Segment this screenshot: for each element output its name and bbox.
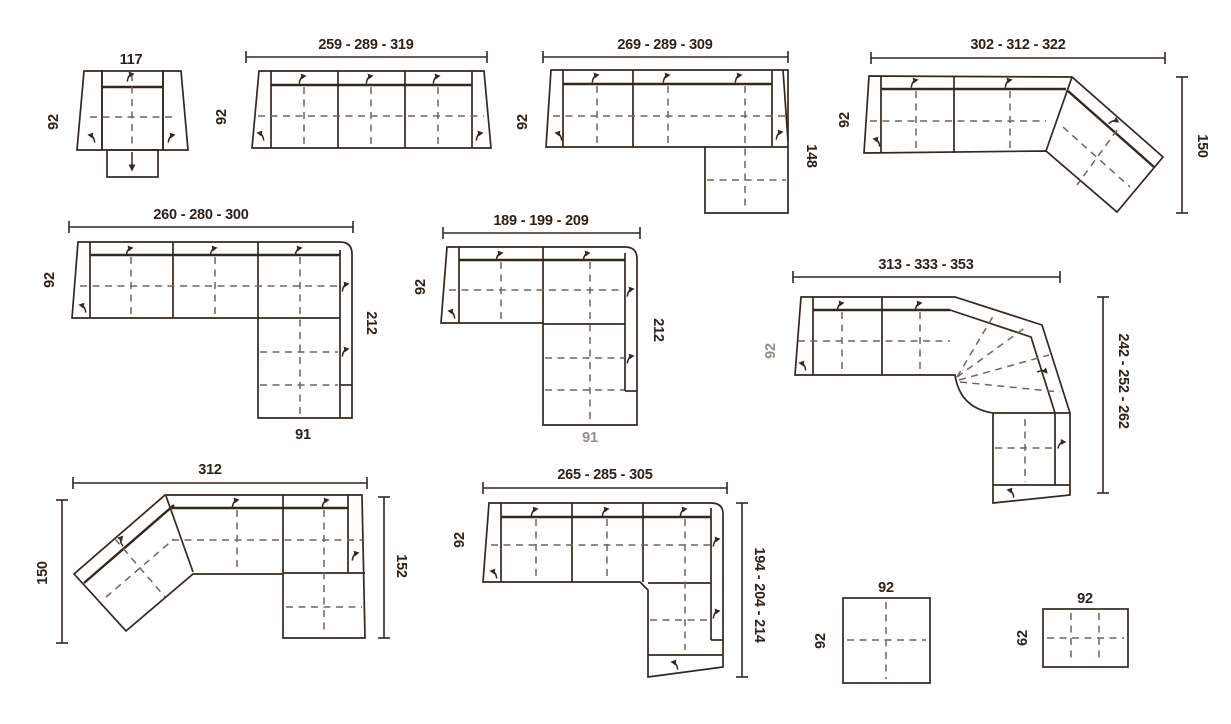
armchair-diagram: 117 92 <box>46 52 188 177</box>
sofa-guides <box>553 86 786 210</box>
pouf-depth-label: 62 <box>1015 630 1031 646</box>
width-dimension-line <box>483 482 727 494</box>
recline-arrow-icon <box>342 347 349 357</box>
sofa-depth-label: 92 <box>214 109 230 125</box>
angled-end-sofa-diagram: 302 - 312 - 322 92 150 <box>837 37 1210 213</box>
pouf-depth-label: 92 <box>813 633 829 649</box>
recline-arrow-icon <box>735 73 742 83</box>
sofa-guides <box>491 519 710 650</box>
recline-arrow-icon <box>433 74 440 84</box>
recline-arrow-icon <box>447 309 454 319</box>
recline-arrow-icon <box>232 498 239 508</box>
recline-arrow-icon <box>299 74 306 84</box>
left-depth-dimension-line <box>56 500 68 643</box>
sofa-width-label: 313 - 333 - 353 <box>878 257 973 273</box>
sofa-outline <box>441 247 637 425</box>
recline-arrow-icon <box>127 72 134 82</box>
sofa-guides <box>870 91 1130 187</box>
low-pouf-diagram: 92 62 <box>1015 591 1128 667</box>
armchair-width-label: 117 <box>120 52 143 68</box>
sofa-width-label: 312 <box>198 462 222 478</box>
left-depth-label: 150 <box>35 561 51 585</box>
recline-arrow-icon <box>592 73 599 83</box>
curved-corner-sofa-diagram: 313 - 333 - 353 92 242 - 252 - 262 <box>763 257 1131 503</box>
sofa-guides <box>798 312 1060 482</box>
sofa-depth-label: 92 <box>452 532 468 548</box>
recline-arrow-icon <box>531 507 538 517</box>
sofa-width-label: 269 - 289 - 309 <box>617 37 712 53</box>
recline-arrow-icon <box>713 609 720 619</box>
recline-arrow-icon <box>366 74 373 84</box>
chaise-sofa-diagram: 269 - 289 - 309 92 148 <box>515 37 819 213</box>
width-dimension-line <box>871 52 1165 64</box>
sofa-width-label: 259 - 289 - 319 <box>318 37 413 53</box>
sofa-width-label: 265 - 285 - 305 <box>557 467 652 483</box>
end-width-label: 91 <box>295 427 311 443</box>
recline-arrow-icon <box>872 137 879 147</box>
pouf-guides <box>1047 613 1124 663</box>
recline-arrow-icon <box>342 282 349 292</box>
corner-chaise-sofa-diagram: 265 - 285 - 305 92 194 - 204 - 214 <box>452 467 767 677</box>
side-depth-label: 242 - 252 - 262 <box>1115 333 1131 428</box>
recline-arrow-icon <box>256 131 263 141</box>
sofa-guides <box>449 262 624 421</box>
armchair-depth-label: 92 <box>46 114 62 130</box>
sofa-depth-label: 92 <box>413 279 429 295</box>
depth-dimension-line <box>736 503 748 677</box>
sofa-width-label: 302 - 312 - 322 <box>970 37 1065 53</box>
sofa-depth-label: 92 <box>837 112 853 128</box>
sofa-guides <box>80 257 338 414</box>
footrest-arrow-icon <box>129 152 136 172</box>
angled-depth-label: 150 <box>1194 134 1210 158</box>
sofa-guides <box>258 87 484 146</box>
corner-sofa-large-diagram: 260 - 280 - 300 92 212 91 <box>42 207 379 443</box>
depth-dimension-line <box>1097 297 1109 493</box>
angled-start-sofa-diagram: 312 150 152 <box>35 462 409 643</box>
pouf-guides <box>847 602 926 679</box>
sofa-outline <box>795 297 1070 503</box>
sofa-outline <box>546 70 788 213</box>
recline-arrow-icon <box>554 131 561 141</box>
pouf-width-label: 92 <box>878 580 894 596</box>
right-depth-dimension-line <box>378 497 390 638</box>
sofa-dimension-sheet: 117 92 259 - 289 - 319 92 <box>0 0 1231 724</box>
side-depth-label: 212 <box>363 311 379 335</box>
recline-arrow-icon <box>1005 78 1012 88</box>
recline-arrow-icon <box>776 130 783 140</box>
three-seat-sofa-diagram: 259 - 289 - 319 92 <box>214 37 491 148</box>
recline-arrow-icon <box>911 78 918 88</box>
recline-arrow-icon <box>602 507 609 517</box>
sofa-width-label: 260 - 280 - 300 <box>153 207 248 223</box>
recline-arrow-icon <box>78 303 85 313</box>
recline-arrow-icon <box>322 498 329 508</box>
side-depth-label: 194 - 204 - 214 <box>751 547 767 642</box>
right-depth-label: 152 <box>393 554 409 578</box>
recline-arrow-icon <box>663 73 670 83</box>
sofa-depth-label: 92 <box>515 114 531 130</box>
sofa-outline <box>483 503 723 677</box>
recline-arrow-icon <box>670 660 677 670</box>
sofa-outline <box>72 242 352 418</box>
sofa-width-label: 189 - 199 - 209 <box>493 213 588 229</box>
recline-arrow-icon <box>1006 488 1013 498</box>
recline-arrow-icon <box>1058 439 1067 450</box>
recline-arrow-icon <box>713 537 720 547</box>
recline-arrow-icon <box>489 569 496 579</box>
sofa-depth-label: 92 <box>42 272 58 288</box>
recline-arrow-icon <box>680 507 687 517</box>
square-pouf-diagram: 92 92 <box>813 580 930 683</box>
recline-arrow-icon <box>627 354 634 364</box>
pouf-width-label: 92 <box>1077 591 1093 607</box>
sofa-outline <box>74 495 365 638</box>
sofa-depth-label: 92 <box>763 343 779 359</box>
depth-dimension-line <box>1176 77 1188 213</box>
floorplan-canvas: 117 92 259 - 289 - 319 92 <box>0 0 1231 724</box>
side-depth-label: 212 <box>650 318 666 342</box>
sofa-outline <box>864 76 1163 212</box>
corner-sofa-small-diagram: 189 - 199 - 209 92 212 91 <box>413 213 666 446</box>
recline-arrow-icon <box>627 287 634 297</box>
sofa-outline <box>252 71 491 148</box>
width-dimension-line <box>73 477 367 489</box>
recline-arrow-icon <box>798 361 805 371</box>
recline-arrow-icon <box>352 551 359 561</box>
chaise-depth-label: 148 <box>803 144 819 168</box>
recline-arrow-icon <box>87 133 94 143</box>
end-width-label: 91 <box>582 430 598 446</box>
recline-arrow-icon <box>476 131 483 141</box>
recline-arrow-icon <box>168 133 175 143</box>
